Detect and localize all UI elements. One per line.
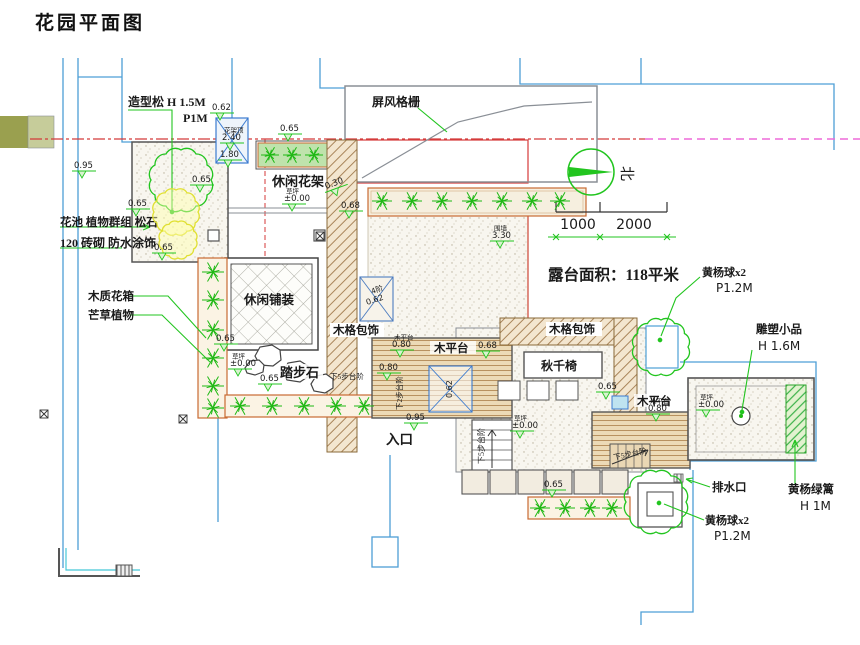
boxwood-bottom-label-1: 黄杨球x2 — [705, 513, 749, 527]
stairs5-mid-label: 下5步台阶 — [330, 371, 364, 381]
elevation-value: ±0.00 — [230, 359, 256, 369]
elevation-value: ±0.00 — [698, 400, 724, 410]
elevation-marker: 0.95 — [72, 161, 96, 178]
boxwood-top-label-2: P1.2M — [716, 281, 753, 295]
wood-planter-label: 木质花箱 — [87, 289, 134, 303]
elevation-prefix: 花架顶 — [224, 126, 244, 135]
terrace-area-label: 露台面积：118平米 — [548, 265, 679, 284]
elevation-value: 0.65 — [128, 199, 147, 209]
elevation-marker: 0.95 — [404, 413, 428, 430]
elevation-value: 3.30 — [492, 231, 511, 241]
elevation-prefix: 草坪 — [286, 187, 300, 196]
elevation-value: ±0.00 — [284, 194, 310, 204]
pergola-label: 休闲花架 — [271, 174, 324, 189]
elevation-value: 1.80 — [220, 150, 239, 160]
bottom-left-wall — [59, 548, 140, 576]
pine-label-1: 造型松 H 1.5M — [128, 94, 206, 109]
elevation-prefix: 草坪 — [232, 352, 246, 361]
elevation-value: 0.68 — [341, 201, 360, 211]
stepping-stone-label: 踏步石 — [280, 365, 319, 380]
elevation-prefix: 围墙 — [494, 224, 508, 233]
paving-label: 休闲铺装 — [243, 292, 295, 307]
elevation-value: 0.95 — [406, 413, 425, 423]
elevation-prefix: 木平台 — [394, 333, 414, 342]
boxwood-top-label-1: 黄杨球x2 — [702, 265, 746, 279]
entrance-label: 入口 — [386, 432, 413, 447]
elevation-value: 0.65 — [544, 480, 563, 490]
garden-plan-page: 花园平面图 — [0, 0, 860, 645]
stairs5-left-label: 下5步台阶 — [476, 428, 486, 464]
wood-trim-right-label: 木格包饰 — [548, 322, 595, 336]
elevation-value: 0.65 — [260, 374, 279, 384]
drain-label: 排水口 — [712, 480, 747, 494]
water-feature — [612, 396, 628, 409]
pine-label-2: P1M — [183, 111, 208, 125]
deck-right — [592, 412, 690, 468]
elevation-value: 0.80 — [392, 340, 411, 350]
sculpture-label-2: H 1.6M — [758, 339, 800, 353]
elevation-value: 0.65 — [280, 124, 299, 134]
screen-label: 屏风格栅 — [371, 94, 420, 109]
grass-label: 芒草植物 — [88, 308, 134, 322]
elevation-prefix: 草坪 — [514, 414, 528, 423]
deck-left-label: 木平台 — [433, 341, 469, 355]
elevation-value: 0.65 — [154, 243, 173, 253]
elevation-value: 0.62 — [212, 103, 231, 113]
hedge-label-1: 黄杨绿篱 — [788, 482, 834, 496]
elevation-prefix: 木平台 — [650, 397, 670, 406]
elevation-marker: ±0.00草坪 — [282, 187, 310, 212]
left-edge-swatches — [0, 116, 54, 148]
elevation-value: 2.40 — [222, 133, 241, 143]
swing-label: 秋千椅 — [541, 358, 577, 373]
elevation-value: 0.95 — [74, 161, 93, 171]
elevation-value: 0.68 — [478, 341, 497, 351]
elevation-value: 0.80 — [379, 363, 398, 373]
planter-row-top — [368, 188, 586, 216]
stairs2-label: 下2步台阶 — [394, 376, 404, 410]
flowerbed-label-2: 120 砖砌 防水涂饰 — [60, 235, 156, 250]
sculpture-label-1: 雕塑小品 — [756, 322, 802, 336]
flowerbed-label-1: 花池 植物群组 松石 — [60, 215, 158, 229]
boxwood-planter-bottom — [638, 474, 683, 527]
elevation-prefix: 草坪 — [700, 393, 714, 402]
elevation-value: ±0.00 — [512, 421, 538, 431]
garden-plan-canvas: 北 1000 2000 造型松 H — [0, 0, 860, 645]
scale-seg2: 2000 — [616, 217, 652, 233]
elevation-value: 0.65 — [192, 175, 211, 185]
table-height-label: 0.62 — [445, 380, 454, 398]
wood-trim-left-label: 木格包饰 — [332, 323, 379, 337]
elevation-value: 0.80 — [648, 404, 667, 414]
hedge-label-2: H 1M — [800, 499, 831, 513]
north-label: 北 — [618, 166, 635, 181]
scale-seg1: 1000 — [560, 217, 596, 233]
elevation-marker: 0.65 — [258, 374, 282, 391]
elevation-value: 0.65 — [598, 382, 617, 392]
elevation-value: 0.65 — [216, 334, 235, 344]
boxwood-bottom-label-2: P1.2M — [714, 529, 751, 543]
